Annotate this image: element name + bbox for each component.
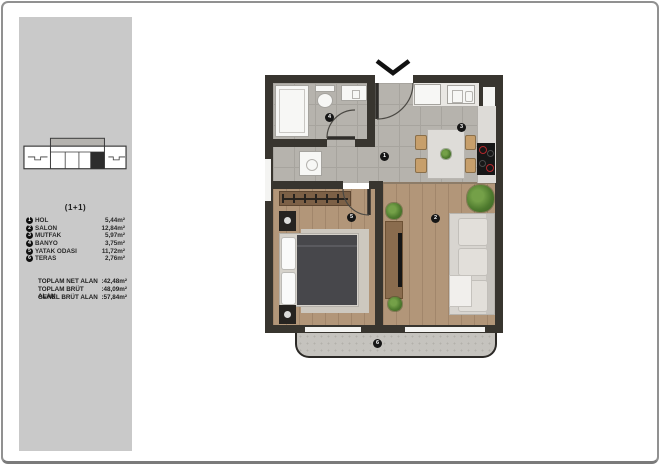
- entrance-arrow-icon: [377, 61, 409, 73]
- room-label: HOL: [35, 217, 48, 224]
- plant-icon: [388, 297, 402, 311]
- room-label: BANYO: [35, 240, 58, 247]
- room-row-mutfak: 3MUTFAK 5,97m²: [26, 232, 125, 240]
- room-label: MUTFAK: [35, 232, 61, 239]
- room-area: 5,97m²: [105, 232, 125, 239]
- room-number-badge: 4: [26, 240, 33, 247]
- total-value: :42,48m²: [101, 278, 127, 286]
- table-plant-icon: [441, 149, 451, 159]
- total-label: TOPLAM BRÜT ALAN: [38, 286, 101, 294]
- plant-icon: [386, 203, 402, 219]
- area-totals: TOPLAM NET ALAN :42,48m² TOPLAM BRÜT ALA…: [38, 278, 127, 302]
- room-area: 2,76m²: [105, 255, 125, 262]
- marker-yatak-odasi: 5: [347, 213, 356, 222]
- bedroom-door-swing: [343, 189, 369, 215]
- total-label: TOPLAM NET ALAN: [38, 278, 101, 286]
- room-label: YATAK ODASI: [35, 248, 77, 255]
- room-list: 1HOL 5,44m² 2SALON 12,84m² 3MUTFAK 5,97m…: [26, 217, 125, 263]
- room-row-banyo: 4BANYO 3,75m²: [26, 240, 125, 248]
- entrance-door-swing: [377, 83, 413, 119]
- room-number-badge: 1: [26, 217, 33, 224]
- total-net-alan: TOPLAM NET ALAN :42,48m²: [38, 278, 127, 286]
- building-key-plan: [22, 131, 128, 177]
- room-row-teras: 6TERAS 2,76m²: [26, 255, 125, 263]
- marker-teras: 6: [373, 339, 382, 348]
- room-label: SALON: [35, 225, 57, 232]
- room-area: 3,75m²: [105, 240, 125, 247]
- room-row-salon: 2SALON 12,84m²: [26, 225, 125, 233]
- marker-banyo: 4: [325, 113, 334, 122]
- doors-and-entrance-overlay: [265, 55, 505, 367]
- total-label: GENEL BRÜT ALAN: [38, 294, 101, 302]
- room-number-badge: 5: [26, 248, 33, 255]
- page: (1+1) 1HOL 5,44m² 2SALON 12,84m² 3MUTFAK…: [1, 1, 659, 464]
- room-label: TERAS: [35, 255, 56, 262]
- room-number-badge: 2: [26, 225, 33, 232]
- room-area: 5,44m²: [105, 217, 125, 224]
- room-row-hol: 1HOL 5,44m²: [26, 217, 125, 225]
- total-value: :48,09m²: [101, 286, 127, 294]
- marker-salon: 2: [431, 214, 440, 223]
- corner-plant-icon: [467, 185, 494, 212]
- highlighted-unit: [91, 152, 105, 169]
- legend-sidebar: (1+1) 1HOL 5,44m² 2SALON 12,84m² 3MUTFAK…: [19, 17, 132, 451]
- total-genel-brut-alan: GENEL BRÜT ALAN :57,84m²: [38, 294, 127, 302]
- room-area: 11,72m²: [102, 248, 125, 255]
- plan-type-label: (1+1): [19, 203, 132, 212]
- total-value: :57,84m²: [101, 294, 127, 302]
- room-row-yatak-odasi: 5YATAK ODASI 11,72m²: [26, 247, 125, 255]
- room-number-badge: 3: [26, 232, 33, 239]
- total-brut-alan: TOPLAM BRÜT ALAN :48,09m²: [38, 286, 127, 294]
- room-area: 12,84m²: [102, 225, 125, 232]
- room-number-badge: 6: [26, 255, 33, 262]
- marker-mutfak: 3: [457, 123, 466, 132]
- marker-hol: 1: [380, 152, 389, 161]
